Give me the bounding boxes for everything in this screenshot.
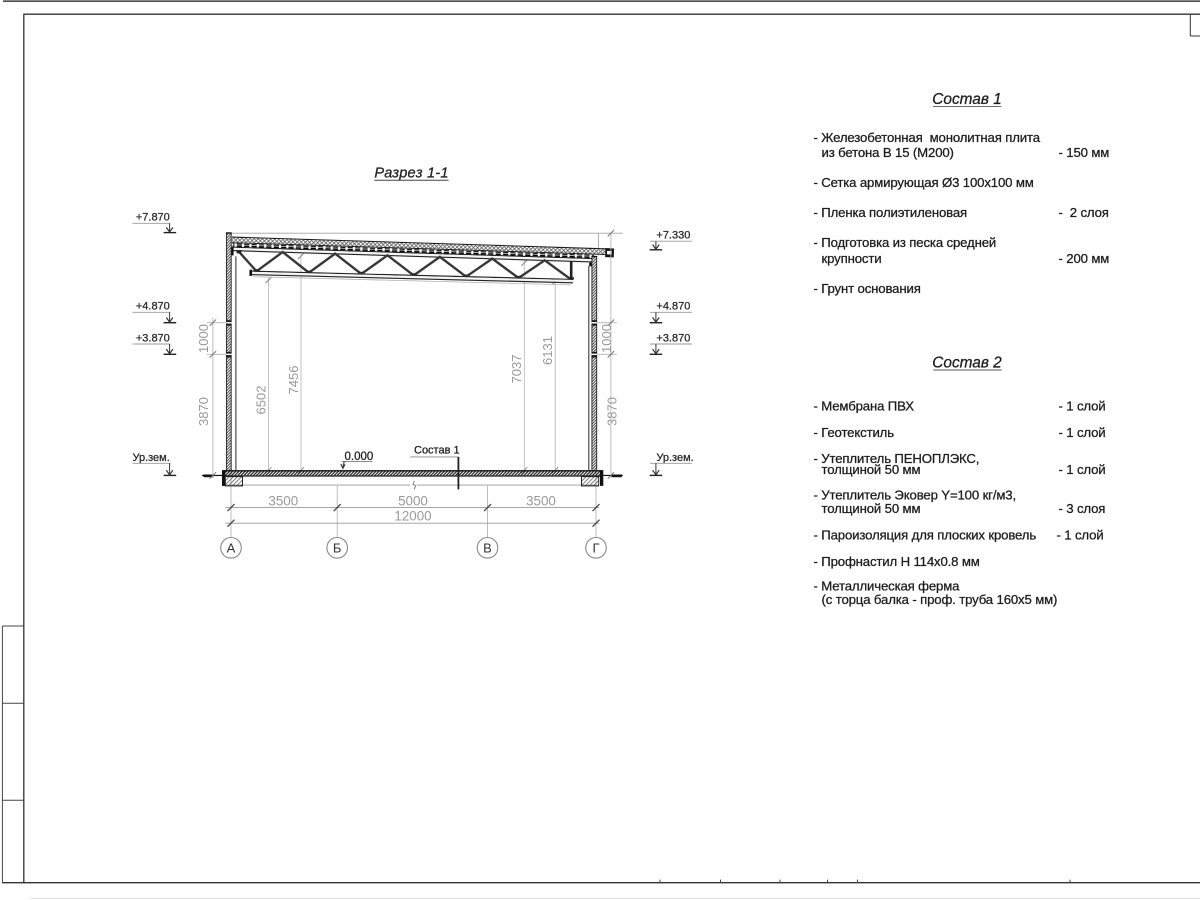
- svg-text:6131: 6131: [540, 336, 555, 365]
- svg-text:0.000: 0.000: [345, 451, 374, 463]
- svg-text:Ур.зем.: Ур.зем.: [656, 452, 693, 464]
- svg-text:- 1 слой: - 1 слой: [1059, 462, 1106, 477]
- svg-text:- Пленка полиэтиленовая: - Пленка полиэтиленовая: [814, 205, 968, 220]
- svg-text:3870: 3870: [604, 397, 619, 426]
- svg-text:Разрез 1-1: Разрез 1-1: [374, 166, 448, 182]
- svg-text:7456: 7456: [286, 366, 301, 395]
- svg-text:- Грунт основания: - Грунт основания: [814, 281, 921, 296]
- svg-text:- Железобетонная монолитная п: - Железобетонная монолитная плита: [814, 130, 1041, 145]
- svg-text:6502: 6502: [253, 386, 268, 415]
- svg-text:Б: Б: [333, 540, 342, 555]
- svg-text:- 1 слой: - 1 слой: [1059, 399, 1106, 414]
- svg-text:5000: 5000: [398, 493, 428, 508]
- svg-text:3500: 3500: [268, 493, 298, 508]
- svg-text:- Подготовка из песка средней: - Подготовка из песка средней: [814, 235, 997, 250]
- svg-text:Состав 1: Состав 1: [414, 445, 460, 457]
- svg-text:+4.870: +4.870: [136, 301, 170, 313]
- svg-text:- 2 слоя: - 2 слоя: [1059, 205, 1109, 220]
- svg-text:+4.870: +4.870: [656, 301, 690, 313]
- svg-text:+7.330: +7.330: [656, 230, 690, 242]
- svg-text:- Профнастил Н 114х0.8 мм: - Профнастил Н 114х0.8 мм: [814, 554, 980, 569]
- svg-text:3500: 3500: [526, 493, 556, 508]
- svg-text:- 200 мм: - 200 мм: [1059, 251, 1110, 266]
- svg-text:- 1 слой: - 1 слой: [1057, 528, 1104, 543]
- svg-text:толщиной 50 мм: толщиной 50 мм: [822, 501, 921, 516]
- svg-text:толщиной 50 мм: толщиной 50 мм: [822, 462, 921, 477]
- svg-text:из бетона В 15 (М200): из бетона В 15 (М200): [822, 145, 954, 160]
- svg-text:+3.870: +3.870: [656, 332, 690, 344]
- svg-text:- 150 мм: - 150 мм: [1059, 145, 1110, 160]
- svg-text:1000: 1000: [599, 324, 614, 353]
- svg-text:- 1 слой: - 1 слой: [1059, 425, 1106, 440]
- svg-text:3870: 3870: [196, 397, 211, 426]
- svg-text:1000: 1000: [196, 324, 211, 353]
- svg-text:А: А: [227, 540, 236, 555]
- svg-text:Ур.зем.: Ур.зем.: [132, 452, 169, 464]
- svg-text:- 3 слоя: - 3 слоя: [1059, 501, 1106, 516]
- svg-text:Состав 2: Состав 2: [932, 354, 1002, 371]
- svg-text:Состав 1: Состав 1: [932, 91, 1001, 108]
- svg-text:(с торца балка - проф. труба 1: (с торца балка - проф. труба 160х5 мм): [822, 592, 1058, 607]
- svg-text:- Мембрана ПВХ: - Мембрана ПВХ: [814, 399, 915, 414]
- svg-text:+7.870: +7.870: [136, 212, 170, 224]
- svg-text:В: В: [483, 540, 492, 555]
- svg-text:крупности: крупности: [822, 251, 882, 266]
- svg-text:7037: 7037: [509, 355, 524, 384]
- svg-text:Г: Г: [592, 540, 599, 555]
- svg-text:- Сетка армирующая Ø3 100х100: - Сетка армирующая Ø3 100х100 мм: [814, 175, 1034, 190]
- svg-text:+3.870: +3.870: [136, 332, 170, 344]
- svg-text:- Пароизоляция для плоских кро: - Пароизоляция для плоских кровель: [814, 528, 1037, 543]
- svg-text:12000: 12000: [394, 509, 431, 524]
- svg-text:- Геотекстиль: - Геотекстиль: [814, 425, 895, 440]
